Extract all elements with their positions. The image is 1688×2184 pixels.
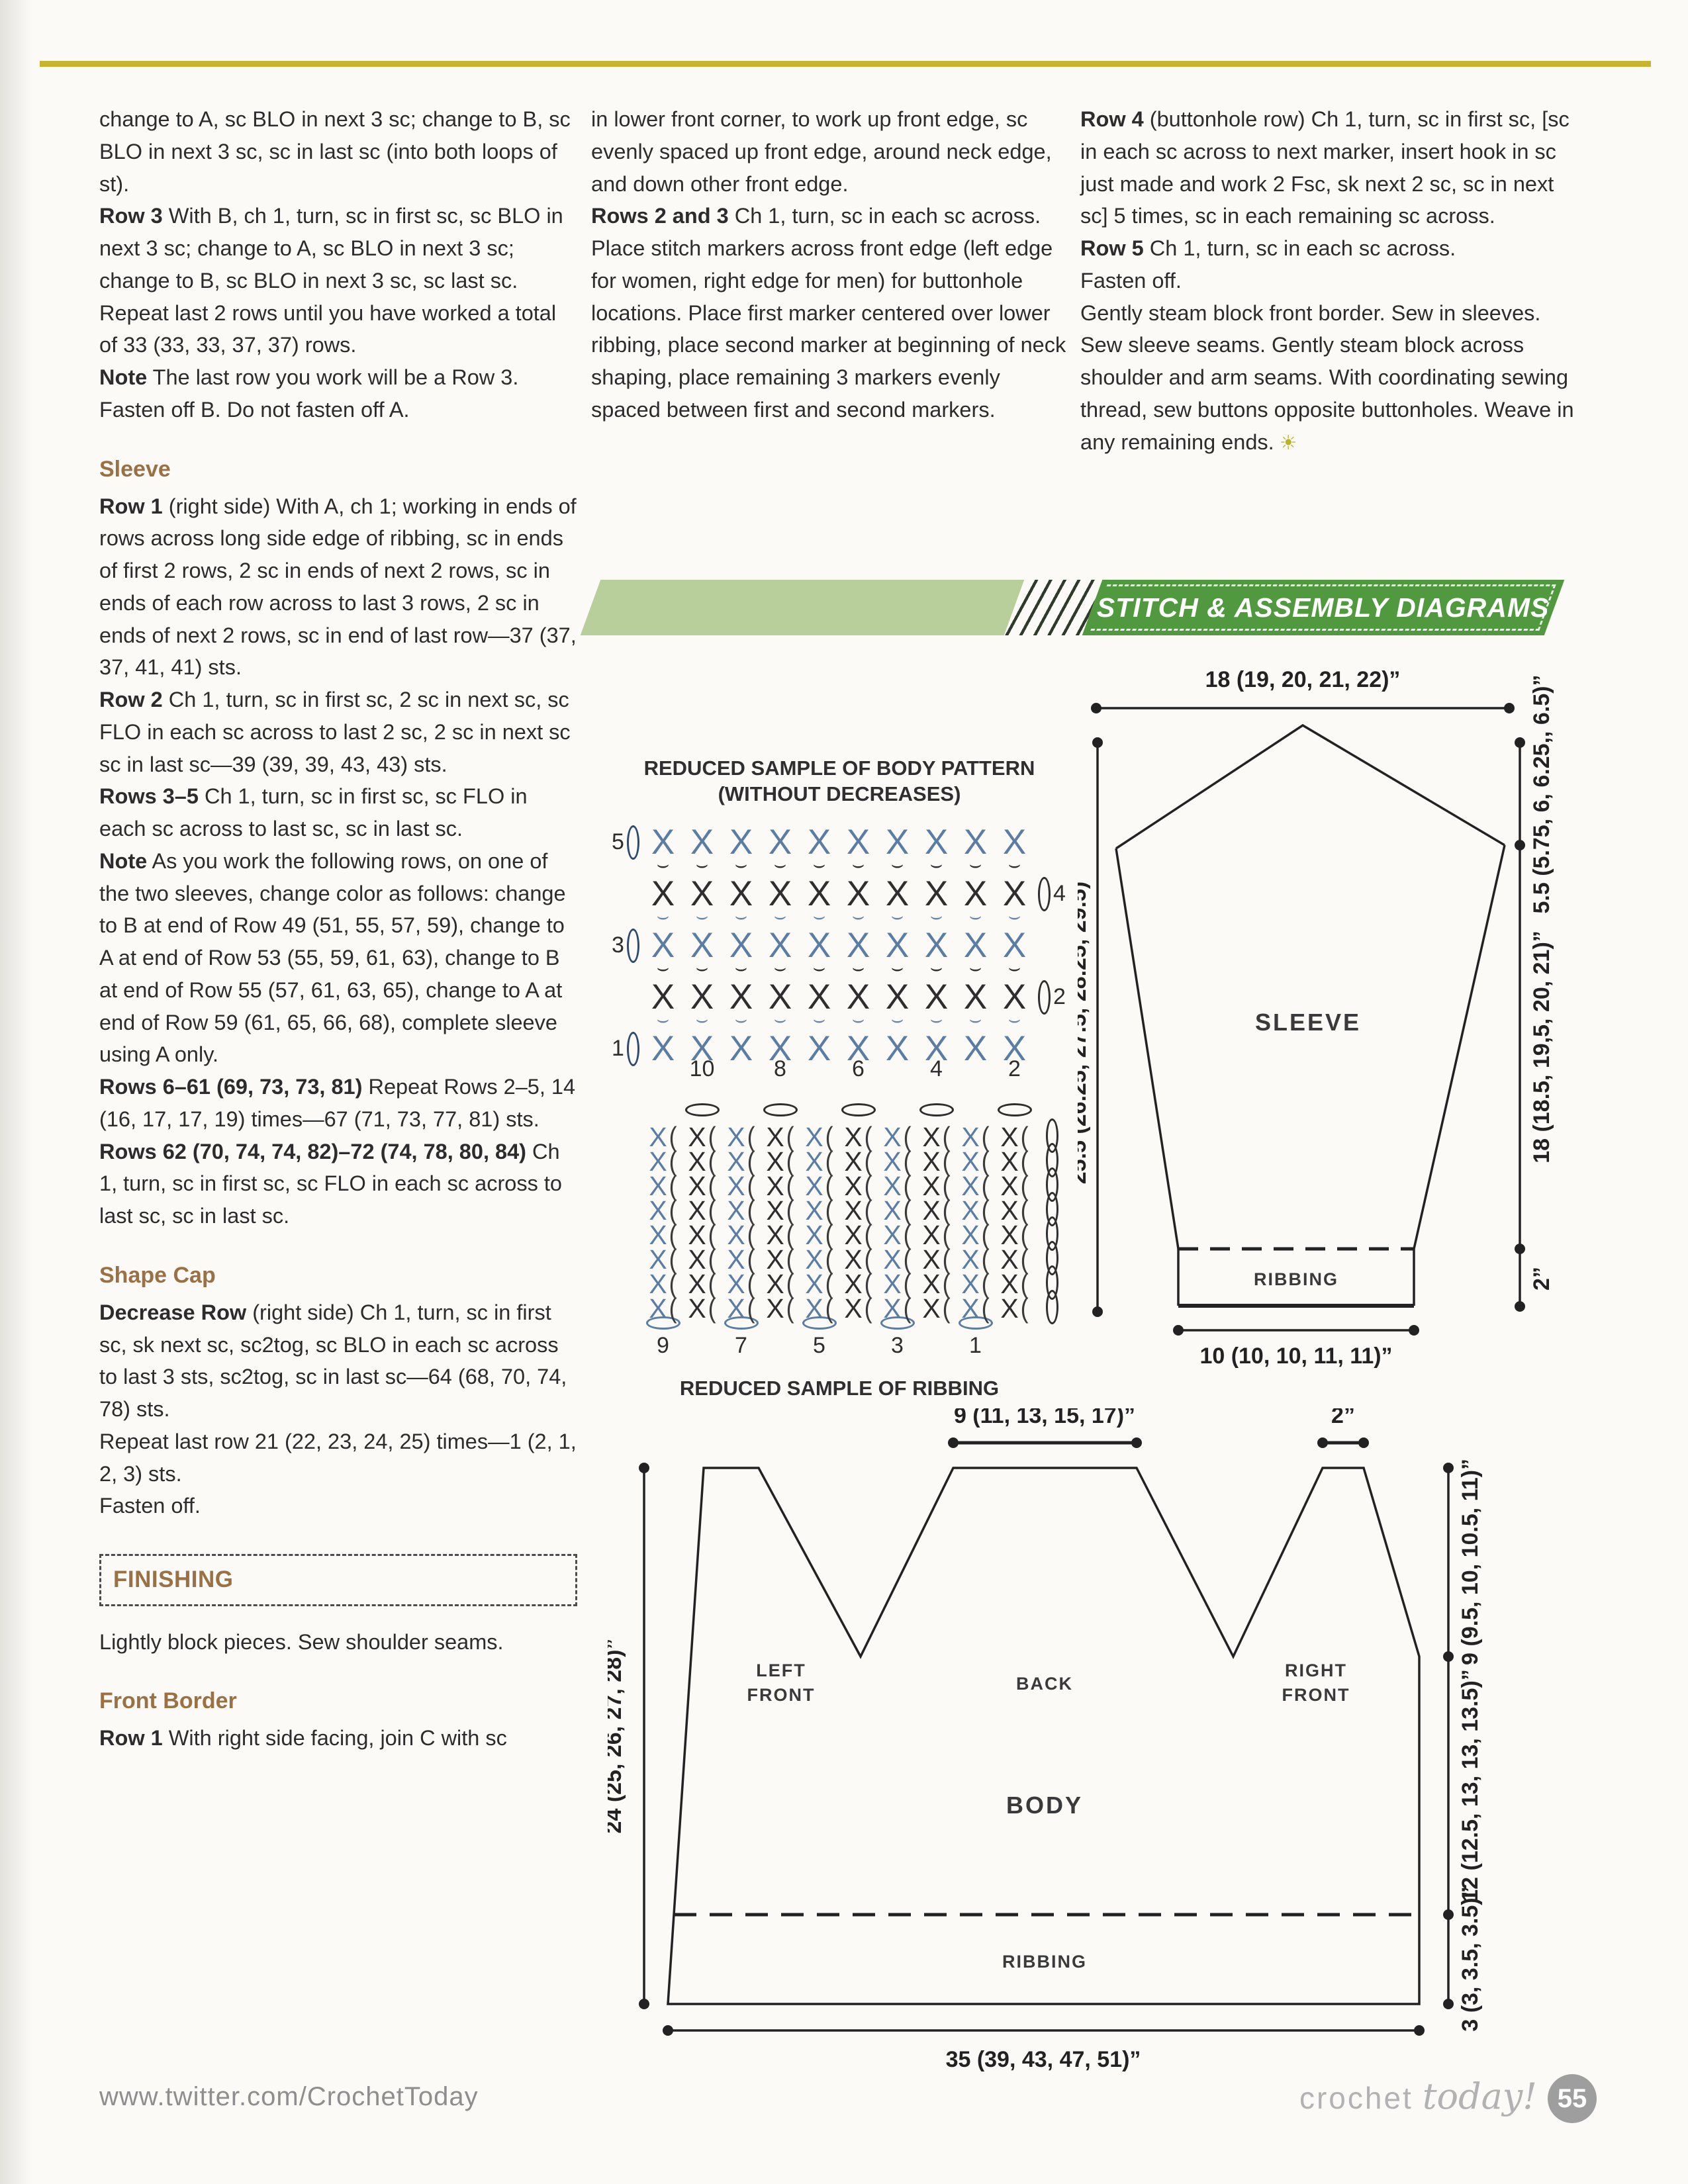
slip-knot-oval xyxy=(998,1103,1032,1116)
front-loop-mark: ( xyxy=(865,1293,872,1324)
body-pattern-row: XXXXXXXXXX2 xyxy=(608,979,1071,1015)
stitch-number: 10 xyxy=(690,1056,715,1082)
row-lead: Rows 3–5 xyxy=(99,784,199,808)
chain-oval xyxy=(1038,877,1051,911)
loop-curve: ⌣ xyxy=(930,1010,943,1030)
front-loop-mark: ( xyxy=(825,1293,833,1324)
row-lead: Row 1 xyxy=(99,494,163,518)
body-side-height-label: 24 (25, 26, 27, 28)” xyxy=(608,1639,626,1834)
stitch-number: 8 xyxy=(774,1056,786,1082)
loop-curve: ⌣ xyxy=(696,1010,709,1030)
magazine-page: change to A, sc BLO in next 3 sc; change… xyxy=(0,0,1688,2184)
ribbing-number: 1 xyxy=(969,1333,982,1359)
pattern-paragraph: Fasten off. xyxy=(99,1490,577,1522)
loop-curve: ⌣ xyxy=(774,1010,787,1030)
row-lead: Note xyxy=(99,365,147,389)
body-back-neck-width-label: 9 (11, 13, 15, 17)” xyxy=(954,1408,1135,1428)
sc-stitch-x: X xyxy=(688,1295,706,1322)
stitch-count-row: 108642 xyxy=(608,1056,1071,1083)
loop-curve: ⌣ xyxy=(813,855,826,875)
body-label: BODY xyxy=(1006,1792,1083,1819)
page-number: 55 xyxy=(1558,2084,1587,2114)
row-number-right: 4 xyxy=(1038,877,1066,911)
loop-curve: ⌣ xyxy=(657,855,670,875)
loop-curve: ⌣ xyxy=(1008,855,1021,875)
loop-curve: ⌣ xyxy=(813,1010,826,1030)
stitch-number: 6 xyxy=(852,1056,865,1082)
logo-word-today: today! xyxy=(1423,2075,1537,2117)
sleeve-label: SLEEVE xyxy=(1255,1009,1361,1036)
loop-curve: ⌣ xyxy=(696,855,709,875)
loop-curve: ⌣ xyxy=(735,855,748,875)
loop-curve-row: ⌣⌣⌣⌣⌣⌣⌣⌣⌣⌣ xyxy=(608,860,1071,876)
ribbing-chart: X(X(X(X(X(X(X(X(X(X(X(X(X(X(X(X(X(X(X(X(… xyxy=(608,1101,1071,1359)
sleeve-cuff-width-label: 10 (10, 10, 11, 11)” xyxy=(1199,1343,1392,1369)
pattern-paragraph: Row 5 Ch 1, turn, sc in each sc across. xyxy=(1080,232,1578,265)
front-loop-mark: ( xyxy=(982,1293,990,1324)
loop-curve: ⌣ xyxy=(930,855,943,875)
back-label: BACK xyxy=(1016,1674,1073,1694)
ribbing-number: 3 xyxy=(891,1333,904,1359)
loop-curve-row: ⌣⌣⌣⌣⌣⌣⌣⌣⌣⌣ xyxy=(608,912,1071,928)
sleeve-arm-height-label: 18 (18.5, 19,5, 20, 21)” xyxy=(1529,931,1554,1163)
pattern-paragraph: Row 1 (right side) With A, ch 1; working… xyxy=(99,490,577,684)
loop-curve: ⌣ xyxy=(891,907,904,927)
pattern-paragraph: Repeat last 2 rows until you have worked… xyxy=(99,297,577,362)
body-pattern-chart: 5XXXXXXXXXX⌣⌣⌣⌣⌣⌣⌣⌣⌣⌣XXXXXXXXXX4⌣⌣⌣⌣⌣⌣⌣⌣… xyxy=(608,825,1071,1083)
pattern-paragraph: change to A, sc BLO in next 3 sc; change… xyxy=(99,103,577,200)
text-column-left: change to A, sc BLO in next 3 sc; change… xyxy=(99,103,577,1754)
sun-icon: ☀ xyxy=(1274,432,1297,454)
row-number-right: 2 xyxy=(1038,980,1066,1015)
loop-curve: ⌣ xyxy=(813,907,826,927)
loop-curve: ⌣ xyxy=(852,907,865,927)
loop-curve: ⌣ xyxy=(852,855,865,875)
chain-oval xyxy=(627,929,639,963)
loop-curve: ⌣ xyxy=(774,907,787,927)
loop-curve: ⌣ xyxy=(774,855,787,875)
ribbing-number: 5 xyxy=(813,1333,825,1359)
pattern-paragraph: Decrease Row (right side) Ch 1, turn, sc… xyxy=(99,1297,577,1426)
banner-title: STITCH & ASSEMBLY DIAGRAMS xyxy=(1097,592,1550,623)
sleeve-ribbing-height-label: 2” xyxy=(1529,1267,1554,1291)
page-edge-shadow xyxy=(0,0,32,2184)
loop-curve: ⌣ xyxy=(696,907,709,927)
loop-curve-row: ⌣⌣⌣⌣⌣⌣⌣⌣⌣⌣ xyxy=(608,1015,1071,1031)
loop-curve: ⌣ xyxy=(969,855,982,875)
sc-stitch-x: X xyxy=(729,1031,753,1066)
front-loop-mark: ( xyxy=(904,1293,912,1324)
ribbing-sample-label: REDUCED SAMPLE OF RIBBING xyxy=(608,1377,1071,1400)
ribbing-row: X(X(X(X(X(X(X(X(X(X( xyxy=(608,1192,1071,1216)
row-lead: Row 4 xyxy=(1080,107,1144,131)
pattern-paragraph: Gently steam block front border. Sew in … xyxy=(1080,297,1578,459)
sc-stitch-x: X xyxy=(886,1031,909,1066)
front-loop-mark: ( xyxy=(669,1293,677,1324)
ribbing-row: X(X(X(X(X(X(X(X(X(X( xyxy=(608,1265,1071,1290)
loop-curve: ⌣ xyxy=(735,1010,748,1030)
row-number-left: 5 xyxy=(612,825,639,860)
ribbing-row: X(X(X(X(X(X(X(X(X(X( xyxy=(608,1167,1071,1192)
left-front-label-line1: LEFT xyxy=(756,1661,806,1680)
page-number-badge: 55 xyxy=(1548,2074,1597,2123)
sc-stitch-x: X xyxy=(844,1295,862,1322)
ribbing-row: X(X(X(X(X(X(X(X(X(X( xyxy=(608,1290,1071,1314)
ribbing-row: X(X(X(X(X(X(X(X(X(X( xyxy=(608,1216,1071,1241)
slip-knot-oval xyxy=(763,1103,798,1116)
chain-oval xyxy=(1038,980,1051,1015)
ribbing-stitch: X( xyxy=(844,1295,872,1322)
loop-curve: ⌣ xyxy=(930,907,943,927)
body-pattern-title-line2: (WITHOUT DECREASES) xyxy=(608,782,1071,807)
row-lead: Rows 62 (70, 74, 74, 82)–72 (74, 78, 80,… xyxy=(99,1140,526,1163)
footer-url[interactable]: www.twitter.com/CrochetToday xyxy=(99,2082,479,2112)
pattern-paragraph: Row 4 (buttonhole row) Ch 1, turn, sc in… xyxy=(1080,103,1578,232)
body-pattern-row: XXXXXXXXXX4 xyxy=(608,876,1071,912)
chain-oval xyxy=(627,825,639,860)
body-lower-height-label: 12 (12.5, 13, 13, 13.5)” xyxy=(1458,1669,1483,1902)
ribbing-stitch: X( xyxy=(1000,1295,1028,1322)
ribbing-row: X(X(X(X(X(X(X(X(X(X( xyxy=(608,1143,1071,1167)
sc-stitch-x: X xyxy=(766,1295,784,1322)
sleeve-ribbing-label: RIBBING xyxy=(1254,1269,1338,1289)
loop-curve: ⌣ xyxy=(657,907,670,927)
loop-curve: ⌣ xyxy=(969,1010,982,1030)
top-rule xyxy=(40,61,1651,67)
pattern-paragraph: Rows 3–5 Ch 1, turn, sc in first sc, sc … xyxy=(99,780,577,845)
loop-curve: ⌣ xyxy=(969,958,982,978)
front-loop-mark: ( xyxy=(708,1293,716,1324)
pattern-paragraph: Note As you work the following rows, on … xyxy=(99,845,577,1071)
ribbing-number: 7 xyxy=(735,1333,747,1359)
chain-oval xyxy=(627,1032,639,1066)
ribbing-number: 9 xyxy=(657,1333,669,1359)
ribbing-stitch: X( xyxy=(766,1295,794,1322)
magazine-logo: crochet today! xyxy=(1299,2075,1537,2117)
section-heading: Front Border xyxy=(99,1684,577,1718)
sleeve-cap-height-label: 5.5 (5.75, 6, 6.25,, 6.5)” xyxy=(1529,674,1554,913)
slip-knot-oval xyxy=(919,1103,954,1116)
ribbing-stitch: X( xyxy=(922,1295,950,1322)
pattern-paragraph: Row 2 Ch 1, turn, sc in first sc, 2 sc i… xyxy=(99,684,577,780)
loop-curve: ⌣ xyxy=(657,958,670,978)
loop-curve: ⌣ xyxy=(891,1010,904,1030)
row-lead: Rows 2 and 3 xyxy=(591,204,729,228)
sc-stitch-x: X xyxy=(808,1031,831,1066)
loop-curve: ⌣ xyxy=(852,1010,865,1030)
body-pattern-title: REDUCED SAMPLE OF BODY PATTERN (WITHOUT … xyxy=(608,756,1071,807)
body-pattern-row: 5XXXXXXXXXX xyxy=(608,825,1071,860)
front-loop-mark: ( xyxy=(786,1293,794,1324)
loop-curve: ⌣ xyxy=(813,958,826,978)
body-armhole-depth-label: 9 (9.5, 10, 10.5, 11)” xyxy=(1458,1459,1483,1665)
pattern-paragraph: Rows 62 (70, 74, 74, 82)–72 (74, 78, 80,… xyxy=(99,1136,577,1232)
row-number-left: 1 xyxy=(612,1032,639,1066)
body-bottom-width-label: 35 (39, 43, 47, 51)” xyxy=(946,2047,1141,2072)
right-front-label-line1: RIGHT xyxy=(1285,1661,1347,1680)
text-column-middle: in lower front corner, to work up front … xyxy=(591,103,1066,426)
sc-stitch-x: X xyxy=(922,1295,940,1322)
body-shoulder-width-label: 2” xyxy=(1331,1408,1355,1428)
row-lead: Note xyxy=(99,849,147,873)
slip-knot-oval xyxy=(685,1103,720,1116)
banner-dark-segment: STITCH & ASSEMBLY DIAGRAMS xyxy=(1082,580,1565,635)
sleeve-schematic: 18 (19, 20, 21, 22)” SLEEVE RIBBING 10 (… xyxy=(1078,650,1607,1391)
pattern-paragraph: Fasten off. xyxy=(1080,265,1578,297)
pattern-paragraph: Repeat last row 21 (22, 23, 24, 25) time… xyxy=(99,1426,577,1490)
loop-curve: ⌣ xyxy=(774,958,787,978)
loop-curve: ⌣ xyxy=(969,907,982,927)
row-lead: Row 2 xyxy=(99,688,163,711)
pattern-paragraph: Row 3 With B, ch 1, turn, sc in first sc… xyxy=(99,200,577,296)
front-loop-mark: ( xyxy=(1021,1293,1029,1324)
loop-curve-row: ⌣⌣⌣⌣⌣⌣⌣⌣⌣⌣ xyxy=(608,964,1071,979)
sleeve-top-width-label: 18 (19, 20, 21, 22)” xyxy=(1205,667,1401,692)
ribbing-top-markers xyxy=(608,1101,1071,1118)
loop-curve: ⌣ xyxy=(891,855,904,875)
loop-curve: ⌣ xyxy=(930,958,943,978)
stitch-sample-diagrams: REDUCED SAMPLE OF BODY PATTERN (WITHOUT … xyxy=(608,756,1071,1400)
body-pattern-row: 3XXXXXXXXXX xyxy=(608,928,1071,964)
row-lead: Row 5 xyxy=(1080,236,1144,260)
front-loop-mark: ( xyxy=(943,1293,951,1324)
row-lead: Rows 6–61 (69, 73, 73, 81) xyxy=(99,1075,362,1099)
slip-knot-oval xyxy=(841,1103,876,1116)
loop-curve: ⌣ xyxy=(1008,958,1021,978)
left-front-label-line2: FRONT xyxy=(747,1685,816,1705)
body-schematic: 9 (11, 13, 15, 17)” 2” 24 (25, 26, 27, 2… xyxy=(608,1408,1561,2123)
finishing-heading-box: FINISHING xyxy=(99,1554,577,1606)
body-pattern-title-line1: REDUCED SAMPLE OF BODY PATTERN xyxy=(608,756,1071,782)
loop-curve: ⌣ xyxy=(1008,907,1021,927)
sleeve-side-height-label: 25.5 (26.25, 27.5, 28.25, 29.5)” xyxy=(1078,870,1091,1184)
pattern-paragraph: in lower front corner, to work up front … xyxy=(591,103,1066,200)
front-loop-mark: ( xyxy=(747,1293,755,1324)
banner-light-segment xyxy=(581,580,1025,635)
loop-curve: ⌣ xyxy=(1008,1010,1021,1030)
section-heading: Shape Cap xyxy=(99,1259,577,1293)
text-column-right: Row 4 (buttonhole row) Ch 1, turn, sc in… xyxy=(1080,103,1578,458)
loop-curve: ⌣ xyxy=(657,1010,670,1030)
row-lead: Decrease Row xyxy=(99,1300,246,1324)
pattern-paragraph: Rows 6–61 (69, 73, 73, 81) Repeat Rows 2… xyxy=(99,1071,577,1136)
turning-chain-oval xyxy=(1046,1290,1058,1324)
ribbing-stitch: X( xyxy=(688,1295,716,1322)
section-heading: Sleeve xyxy=(99,453,577,486)
stitch-number: 2 xyxy=(1008,1056,1021,1082)
sc-stitch-x: X xyxy=(964,1031,987,1066)
loop-curve: ⌣ xyxy=(735,958,748,978)
loop-curve: ⌣ xyxy=(735,907,748,927)
row-lead: Row 1 xyxy=(99,1726,163,1750)
stitch-number: 4 xyxy=(930,1056,943,1082)
logo-word-crochet: crochet xyxy=(1299,2080,1413,2116)
ribbing-count-row: 97531 xyxy=(608,1333,1071,1359)
loop-curve: ⌣ xyxy=(891,958,904,978)
row-lead: Row 3 xyxy=(99,204,163,228)
sc-stitch-x: X xyxy=(651,1031,675,1066)
pattern-paragraph: Row 1 With right side facing, join C wit… xyxy=(99,1722,577,1754)
right-front-label-line2: FRONT xyxy=(1282,1685,1350,1705)
row-number-left: 3 xyxy=(612,929,639,963)
body-ribbing-height-label: 3 (3, 3.5, 3.5)” xyxy=(1458,1886,1483,2031)
pattern-paragraph: Note The last row you work will be a Row… xyxy=(99,361,577,426)
section-banner: STITCH & ASSEMBLY DIAGRAMS xyxy=(581,580,1565,635)
pattern-paragraph: Rows 2 and 3 Ch 1, turn, sc in each sc a… xyxy=(591,200,1066,232)
loop-curve: ⌣ xyxy=(696,958,709,978)
sc-stitch-x: X xyxy=(1000,1295,1018,1322)
body-ribbing-label: RIBBING xyxy=(1002,1952,1087,1972)
pattern-paragraph: Lightly block pieces. Sew shoulder seams… xyxy=(99,1626,577,1659)
pattern-paragraph: Place stitch markers across front edge (… xyxy=(591,232,1066,426)
ribbing-row: X(X(X(X(X(X(X(X(X(X( xyxy=(608,1118,1071,1143)
ribbing-row: X(X(X(X(X(X(X(X(X(X( xyxy=(608,1241,1071,1265)
loop-curve: ⌣ xyxy=(852,958,865,978)
